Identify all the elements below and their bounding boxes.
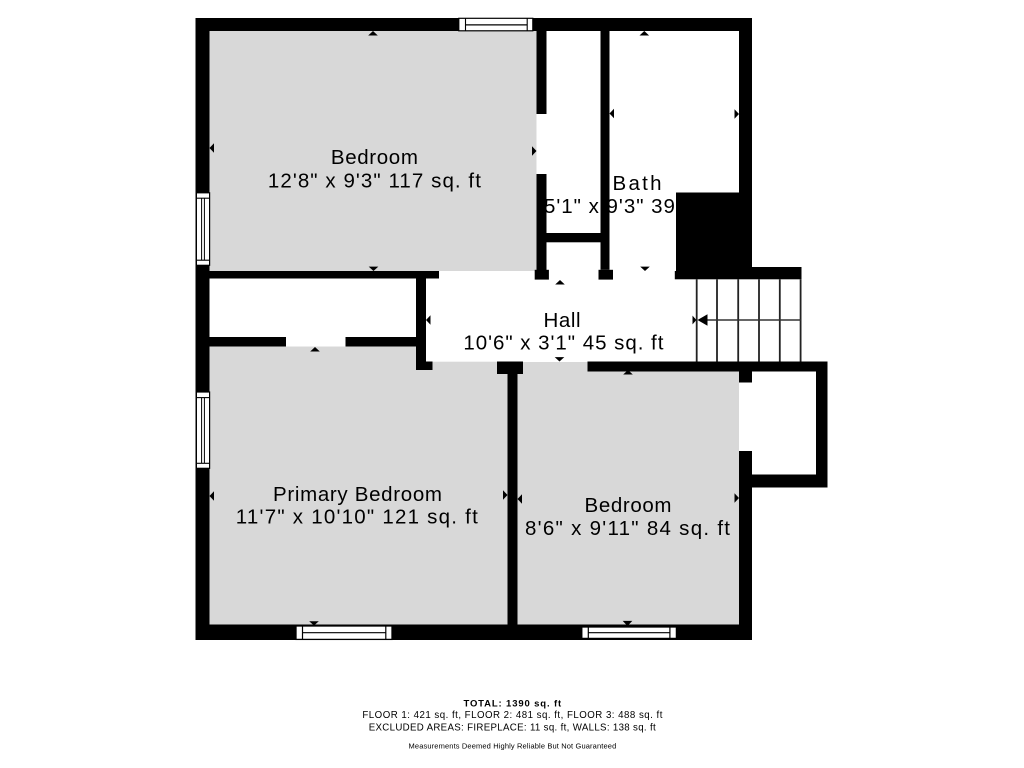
svg-text:Bath: Bath: [613, 172, 662, 195]
svg-text:Measurements Deemed Highly Rel: Measurements Deemed Highly Reliable But …: [409, 741, 617, 750]
svg-text:8'6" x 9'11" 84 sq. ft: 8'6" x 9'11" 84 sq. ft: [525, 517, 730, 540]
svg-text:FLOOR 1: 421 sq. ft, FLOOR 2:: FLOOR 1: 421 sq. ft, FLOOR 2: 481 sq. ft…: [362, 710, 662, 721]
svg-text:12'8" x 9'3" 117 sq. ft: 12'8" x 9'3" 117 sq. ft: [268, 169, 481, 192]
svg-text:TOTAL: 1390 sq. ft: TOTAL: 1390 sq. ft: [463, 699, 562, 710]
svg-text:Bedroom: Bedroom: [331, 146, 418, 169]
svg-text:Primary Bedroom: Primary Bedroom: [273, 483, 442, 506]
svg-text:Bedroom: Bedroom: [585, 494, 672, 517]
svg-text:EXCLUDED AREAS: FIREPLACE: 11: EXCLUDED AREAS: FIREPLACE: 11 sq. ft, WA…: [369, 722, 656, 733]
svg-text:10'6" x 3'1" 45 sq. ft: 10'6" x 3'1" 45 sq. ft: [463, 332, 663, 355]
svg-text:11'7" x 10'10" 121 sq. ft: 11'7" x 10'10" 121 sq. ft: [236, 505, 478, 528]
svg-text:Hall: Hall: [544, 309, 581, 332]
